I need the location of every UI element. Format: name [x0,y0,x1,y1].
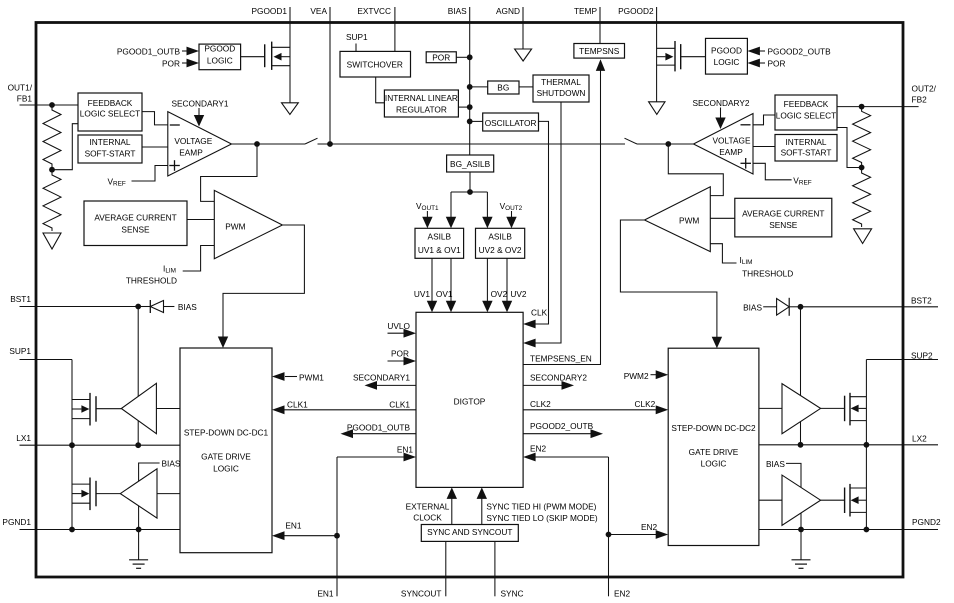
svg-text:SUP2: SUP2 [911,350,933,360]
svg-text:POR: POR [162,58,180,68]
svg-text:OSCILLATOR: OSCILLATOR [485,118,537,128]
svg-text:SOFT-START: SOFT-START [781,148,832,158]
svg-text:TEMPSNS: TEMPSNS [579,46,620,56]
svg-text:EXTERNAL: EXTERNAL [406,502,450,512]
svg-text:VOLTAGE: VOLTAGE [174,136,212,146]
svg-text:BST2: BST2 [911,296,932,306]
svg-text:FEEDBACK: FEEDBACK [88,98,133,108]
svg-text:EAMP: EAMP [719,147,743,157]
svg-text:SWITCHOVER: SWITCHOVER [347,60,403,70]
svg-text:EAMP: EAMP [179,148,203,158]
svg-text:THERMAL: THERMAL [541,77,581,87]
svg-text:EN2: EN2 [641,522,658,532]
svg-text:REGULATOR: REGULATOR [396,104,447,114]
svg-text:OV1: OV1 [436,289,453,299]
svg-text:OV2: OV2 [491,289,508,299]
svg-text:PGND1: PGND1 [2,517,31,527]
svg-text:BG_ASILB: BG_ASILB [450,159,491,169]
svg-text:CLK2: CLK2 [635,399,656,409]
svg-text:VEA: VEA [310,6,327,16]
svg-text:EN1: EN1 [317,589,334,599]
svg-text:LOGIC: LOGIC [207,56,233,66]
svg-text:GATE DRIVE: GATE DRIVE [201,452,251,462]
svg-text:PGOOD: PGOOD [711,46,742,56]
svg-text:FEEDBACK: FEEDBACK [784,99,829,109]
svg-text:AVERAGE CURRENT: AVERAGE CURRENT [94,213,176,223]
svg-text:STEP-DOWN DC-DC2: STEP-DOWN DC-DC2 [671,423,756,433]
svg-text:POR: POR [768,58,786,68]
svg-text:SUP1: SUP1 [346,32,368,42]
svg-text:THRESHOLD: THRESHOLD [742,268,793,278]
svg-text:UV1 & OV1: UV1 & OV1 [418,245,461,255]
svg-text:PGOOD2_OUTB: PGOOD2_OUTB [530,421,594,431]
svg-text:CLK2: CLK2 [530,399,551,409]
svg-text:PGOOD: PGOOD [204,44,235,54]
svg-text:GATE DRIVE: GATE DRIVE [689,447,739,457]
svg-text:SYNCOUT: SYNCOUT [401,589,442,599]
svg-text:POR: POR [391,349,409,359]
svg-text:BIAS: BIAS [162,459,181,469]
svg-text:UV2 & OV2: UV2 & OV2 [479,245,522,255]
svg-text:CLOCK: CLOCK [413,513,442,523]
svg-text:SECONDARY2: SECONDARY2 [692,98,749,108]
svg-text:SECONDARY1: SECONDARY1 [353,373,410,383]
svg-text:CLK1: CLK1 [389,400,410,410]
svg-text:THRESHOLD: THRESHOLD [126,276,177,286]
svg-text:FB1: FB1 [17,94,33,104]
svg-text:PGOOD1: PGOOD1 [251,6,287,16]
svg-text:INTERNAL LINEAR: INTERNAL LINEAR [385,93,458,103]
svg-text:SYNC: SYNC [501,589,524,599]
svg-text:TEMP: TEMP [574,6,598,16]
svg-text:STEP-DOWN DC-DC1: STEP-DOWN DC-DC1 [184,428,269,438]
svg-text:LOGIC: LOGIC [701,459,727,469]
svg-text:PGND2: PGND2 [912,517,941,527]
svg-text:POR: POR [432,52,450,62]
svg-text:PGOOD2: PGOOD2 [618,6,654,16]
svg-text:SYNC TIED LO (SKIP MODE): SYNC TIED LO (SKIP MODE) [486,513,597,523]
svg-text:BIAS: BIAS [448,6,467,16]
svg-text:ASILB: ASILB [428,232,452,242]
svg-text:PGOOD2_OUTB: PGOOD2_OUTB [768,47,832,57]
svg-text:TEMPSENS_EN: TEMPSENS_EN [530,354,592,364]
svg-text:INTERNAL: INTERNAL [89,137,130,147]
svg-text:ASILB: ASILB [488,232,512,242]
svg-text:LOGIC SELECT: LOGIC SELECT [80,109,140,119]
svg-text:BST1: BST1 [10,294,31,304]
svg-text:SOFT-START: SOFT-START [85,149,136,159]
svg-text:EXTVCC: EXTVCC [357,6,391,16]
svg-text:UV1: UV1 [414,289,431,299]
svg-text:OUT1/: OUT1/ [8,82,33,92]
svg-text:LOGIC SELECT: LOGIC SELECT [776,111,836,121]
svg-text:EN2: EN2 [614,589,631,599]
svg-text:LOGIC: LOGIC [714,57,740,67]
svg-text:VOLTAGE: VOLTAGE [713,136,751,146]
svg-text:UVLO: UVLO [387,321,410,331]
svg-text:SECONDARY1: SECONDARY1 [171,99,228,109]
svg-text:PWM: PWM [679,215,699,225]
svg-text:LX1: LX1 [16,433,31,443]
svg-text:CLK1: CLK1 [287,400,308,410]
svg-text:SYNC TIED HI (PWM MODE): SYNC TIED HI (PWM MODE) [486,502,596,512]
svg-text:FB2: FB2 [912,95,928,105]
svg-text:SECONDARY2: SECONDARY2 [530,373,587,383]
svg-text:SHUTDOWN: SHUTDOWN [537,88,586,98]
svg-text:INTERNAL: INTERNAL [785,137,826,147]
svg-text:BIAS: BIAS [743,302,762,312]
svg-text:PWM2: PWM2 [624,371,649,381]
svg-text:BIAS: BIAS [178,302,197,312]
svg-text:UV2: UV2 [510,289,527,299]
svg-text:SYNC AND SYNCOUT: SYNC AND SYNCOUT [427,527,512,537]
svg-text:PGOOD1_OUTB: PGOOD1_OUTB [117,47,181,57]
svg-text:CLK: CLK [531,308,548,318]
svg-text:PWM: PWM [225,221,245,231]
svg-text:OUT2/: OUT2/ [912,83,937,93]
svg-text:BIAS: BIAS [766,459,785,469]
svg-text:EN1: EN1 [397,445,414,455]
svg-text:AGND: AGND [496,6,520,16]
svg-text:LOGIC: LOGIC [213,464,239,474]
svg-text:DIGTOP: DIGTOP [454,397,486,407]
svg-text:SUP1: SUP1 [9,346,31,356]
svg-text:AVERAGE CURRENT: AVERAGE CURRENT [742,208,824,218]
svg-text:SENSE: SENSE [121,224,150,234]
svg-text:EN2: EN2 [530,444,547,454]
svg-text:SENSE: SENSE [769,220,798,230]
svg-text:EN1: EN1 [285,521,302,531]
svg-text:LX2: LX2 [912,433,927,443]
svg-text:PGOOD1_OUTB: PGOOD1_OUTB [347,423,411,433]
svg-text:BG: BG [497,83,509,93]
svg-text:PWM1: PWM1 [299,373,324,383]
